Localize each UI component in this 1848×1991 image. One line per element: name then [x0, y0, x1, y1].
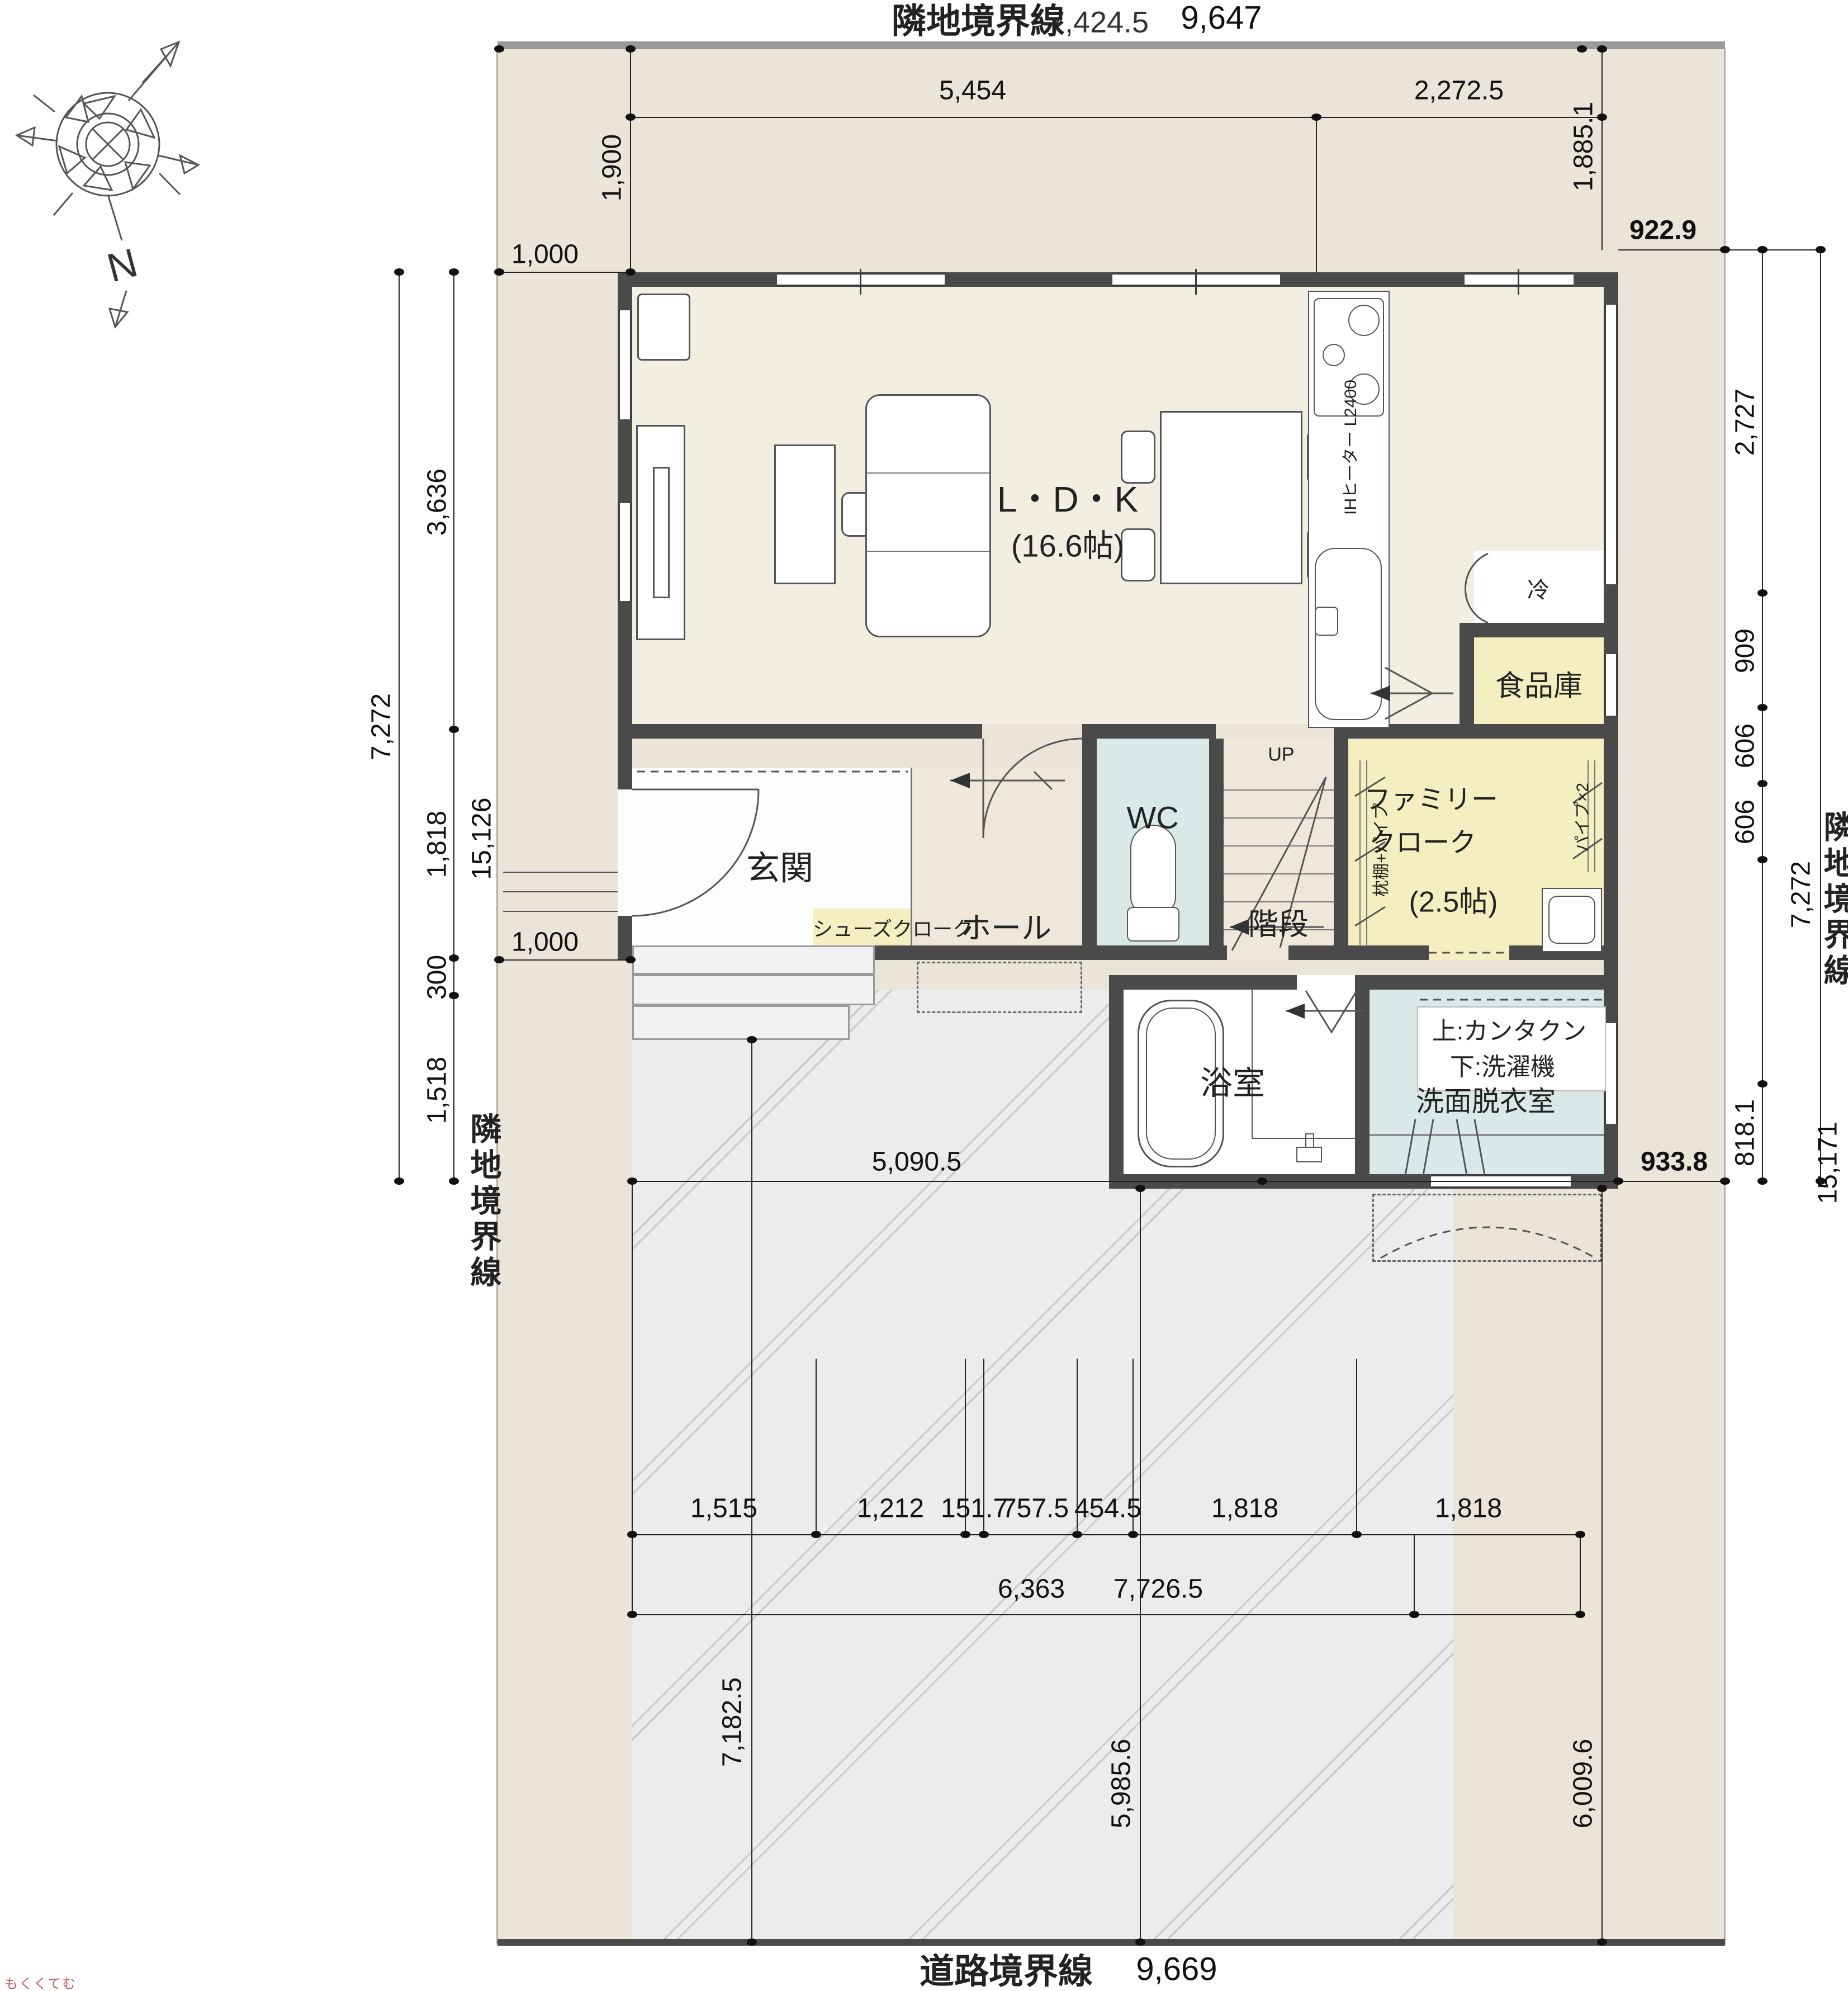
dim-dot	[626, 113, 636, 121]
dim-line-right-outer	[1820, 250, 1821, 1181]
watermark: もくくてむ	[4, 1973, 77, 1991]
dim-6363: 6,363	[998, 1574, 1065, 1605]
dim-line-5985	[1140, 1189, 1141, 1943]
dim-dot	[1257, 1177, 1267, 1185]
pantry-label: 食品庫	[1495, 663, 1582, 704]
dim-line-top	[631, 117, 1602, 118]
fridge-door-arc	[1466, 554, 1489, 623]
washroom-note-upper: 上:カンタクン	[1432, 1011, 1586, 1047]
dim-dot	[1757, 780, 1768, 787]
dim-line-1000a	[497, 272, 631, 273]
left-boundary-total: 15,126	[467, 798, 497, 880]
dim-dot	[1135, 1185, 1145, 1192]
dim-line-row2	[632, 1614, 1580, 1615]
dim-7272-right: 7,272	[1786, 861, 1817, 928]
family-cloak-size: (2.5帖)	[1409, 878, 1498, 920]
dim-dot	[494, 45, 504, 53]
dim-5985: 5,985.6	[1106, 1739, 1137, 1828]
dim-r1-1818a: 1,818	[1211, 1493, 1278, 1524]
dim-dot	[1575, 1611, 1585, 1618]
dim-dot	[394, 268, 404, 276]
approach-deck-lines	[503, 872, 618, 911]
dim-dot	[1613, 1177, 1623, 1185]
genkan-door-arc	[632, 789, 759, 916]
tick-row-right	[1580, 1534, 1581, 1614]
ih-heater-label: IHヒーター L2400	[1337, 380, 1361, 515]
dim-dot	[1409, 1611, 1419, 1618]
dim-300: 300	[422, 955, 453, 1000]
dim-dot	[960, 1531, 970, 1538]
dim-818: 818.1	[1730, 1099, 1761, 1166]
dim-922: 922.9	[1629, 215, 1697, 246]
right-boundary-label: 隣地境界線	[1814, 811, 1848, 990]
dim-1518: 1,518	[422, 1057, 453, 1124]
tick-row-left	[632, 1181, 633, 1614]
hall-arrow-head	[950, 773, 970, 788]
dim-dot	[1577, 45, 1587, 53]
dim-line-7182	[751, 1040, 752, 1943]
hall-door-arc	[983, 739, 1083, 838]
dim-dot	[1757, 1080, 1768, 1087]
dim-dot	[449, 726, 459, 733]
dim-dot	[1816, 246, 1826, 253]
washroom-note-lower: 下:洗濯機	[1450, 1047, 1555, 1082]
wc-label: WC	[1126, 800, 1178, 836]
dim-dot	[626, 268, 636, 276]
dim-dot	[1575, 1531, 1585, 1538]
dim-line-row1	[632, 1534, 1580, 1535]
closet-left-label: 枕棚+パイプ	[1367, 803, 1392, 897]
dim-1900: 1,900	[597, 134, 628, 201]
dim-7182: 7,182.5	[717, 1677, 748, 1767]
dim-606a: 606	[1730, 723, 1761, 768]
dim-line-1000b	[497, 959, 631, 961]
dim-line-right-inner	[1762, 250, 1763, 1181]
dim-dot	[1597, 45, 1607, 53]
dim-606b: 606	[1730, 800, 1761, 844]
dim-dot	[626, 45, 636, 53]
dim-r1-757: 757.5	[1002, 1493, 1069, 1524]
tick-top-junction	[1316, 117, 1317, 272]
compass-north-label: N	[102, 240, 142, 291]
hall-label: ホール	[961, 904, 1051, 948]
dim-3636: 3,636	[422, 469, 453, 536]
ldk-size-label: (16.6帖)	[1011, 521, 1124, 566]
dim-dot	[449, 268, 459, 276]
dim-6009: 6,009.6	[1568, 1739, 1599, 1828]
dim-dot	[627, 1611, 637, 1618]
dim-dot	[494, 956, 504, 963]
dim-dot	[1757, 246, 1768, 253]
tick-r1-6	[1356, 1359, 1357, 1534]
left-boundary-label: 隣地境界線	[461, 1113, 506, 1292]
dim-dot	[627, 1177, 637, 1185]
compass-rose	[17, 42, 198, 327]
dim-r1-151: 151.7	[941, 1493, 1008, 1524]
ldk-label: L・D・K	[997, 471, 1139, 522]
linework-overlay: N	[0, 0, 1848, 1991]
washroom-label: 洗面脱衣室	[1416, 1079, 1556, 1119]
dim-933: 933.8	[1641, 1147, 1708, 1177]
dim-line-left-outer	[399, 272, 400, 1181]
bath-label: 浴室	[1200, 1057, 1265, 1104]
shoes-cloak-label: シューズクローク	[813, 913, 973, 942]
dim-dot	[494, 268, 504, 276]
dim-dot	[627, 1531, 637, 1538]
dim-line-mid	[632, 1181, 1725, 1182]
dim-dot	[1311, 113, 1321, 121]
dim-dot	[979, 1531, 989, 1538]
road-boundary-dim: 9,669	[1136, 1951, 1217, 1988]
dim-dot	[1720, 246, 1730, 253]
dim-r1-1212: 1,212	[857, 1493, 924, 1524]
dim-5090: 5,090.5	[872, 1147, 961, 1177]
closet-right-label: パイプ×2	[1569, 783, 1593, 852]
dim-dot	[1757, 589, 1768, 597]
dim-r1-454: 454.5	[1074, 1493, 1141, 1524]
dim-dot	[1597, 1185, 1607, 1192]
dim-dot	[1757, 704, 1768, 711]
canopy-arc-dashed	[1381, 1227, 1595, 1258]
dim-dot	[811, 1531, 821, 1538]
dim-r1-1515: 1,515	[690, 1493, 757, 1524]
dim-1818-left: 1,818	[422, 811, 453, 878]
genkan-label: 玄関	[746, 841, 813, 890]
dim-dot	[626, 956, 636, 963]
pantry-arrow-head	[1371, 685, 1390, 701]
dim-dot	[747, 1036, 757, 1043]
dim-dot	[394, 1177, 404, 1185]
dim-2727: 2,727	[1730, 389, 1761, 456]
top-boundary-dim: 9,647	[1181, 0, 1262, 37]
dim-r1-1818b: 1,818	[1435, 1493, 1502, 1524]
dim-line-1900	[630, 49, 631, 272]
dim-1000b: 1,000	[511, 927, 579, 958]
dim-line-6009	[1601, 1189, 1603, 1943]
right-boundary-total: 15,171	[1813, 1122, 1844, 1204]
stairs-arrow-head	[1230, 919, 1249, 935]
dim-line-1885	[1601, 49, 1603, 250]
dim-909: 909	[1730, 628, 1761, 673]
dim-dot	[1135, 1938, 1145, 1946]
top-boundary-label: 隣地境界線	[892, 0, 1065, 43]
tick-r2	[1414, 1534, 1415, 1614]
dim-1885: 1,885.1	[1569, 102, 1599, 191]
dim-5454: 5,454	[939, 75, 1006, 106]
dim-dot	[747, 1938, 757, 1946]
dim-dot	[1597, 1938, 1607, 1946]
dim-dot	[1072, 1531, 1082, 1538]
stairs-label: 階段	[1248, 900, 1309, 944]
dim-7272-left: 7,272	[366, 693, 397, 760]
dim-dot	[449, 1177, 459, 1185]
dim-2272: 2,272.5	[1414, 75, 1504, 106]
tick-r1-1	[816, 1359, 817, 1534]
dim-7726: 7,726.5	[1113, 1574, 1203, 1605]
dim-dot	[1720, 1177, 1730, 1185]
dim-line-922	[1618, 249, 1821, 250]
dim-dot	[1757, 1177, 1768, 1185]
dim-1000a: 1,000	[511, 239, 579, 270]
dim-dot	[1757, 856, 1768, 863]
washer-marks	[1405, 1119, 1485, 1175]
dim-dot	[1352, 1531, 1362, 1538]
bath-arrow-head	[1286, 1004, 1305, 1019]
road-boundary-label: 道路境界線	[920, 1943, 1093, 1991]
dim-dot	[1128, 1531, 1138, 1538]
floor-plan-canvas: N	[0, 0, 1848, 1991]
fridge-label: 冷	[1527, 572, 1550, 604]
stairs-up-label: UP	[1268, 744, 1294, 766]
